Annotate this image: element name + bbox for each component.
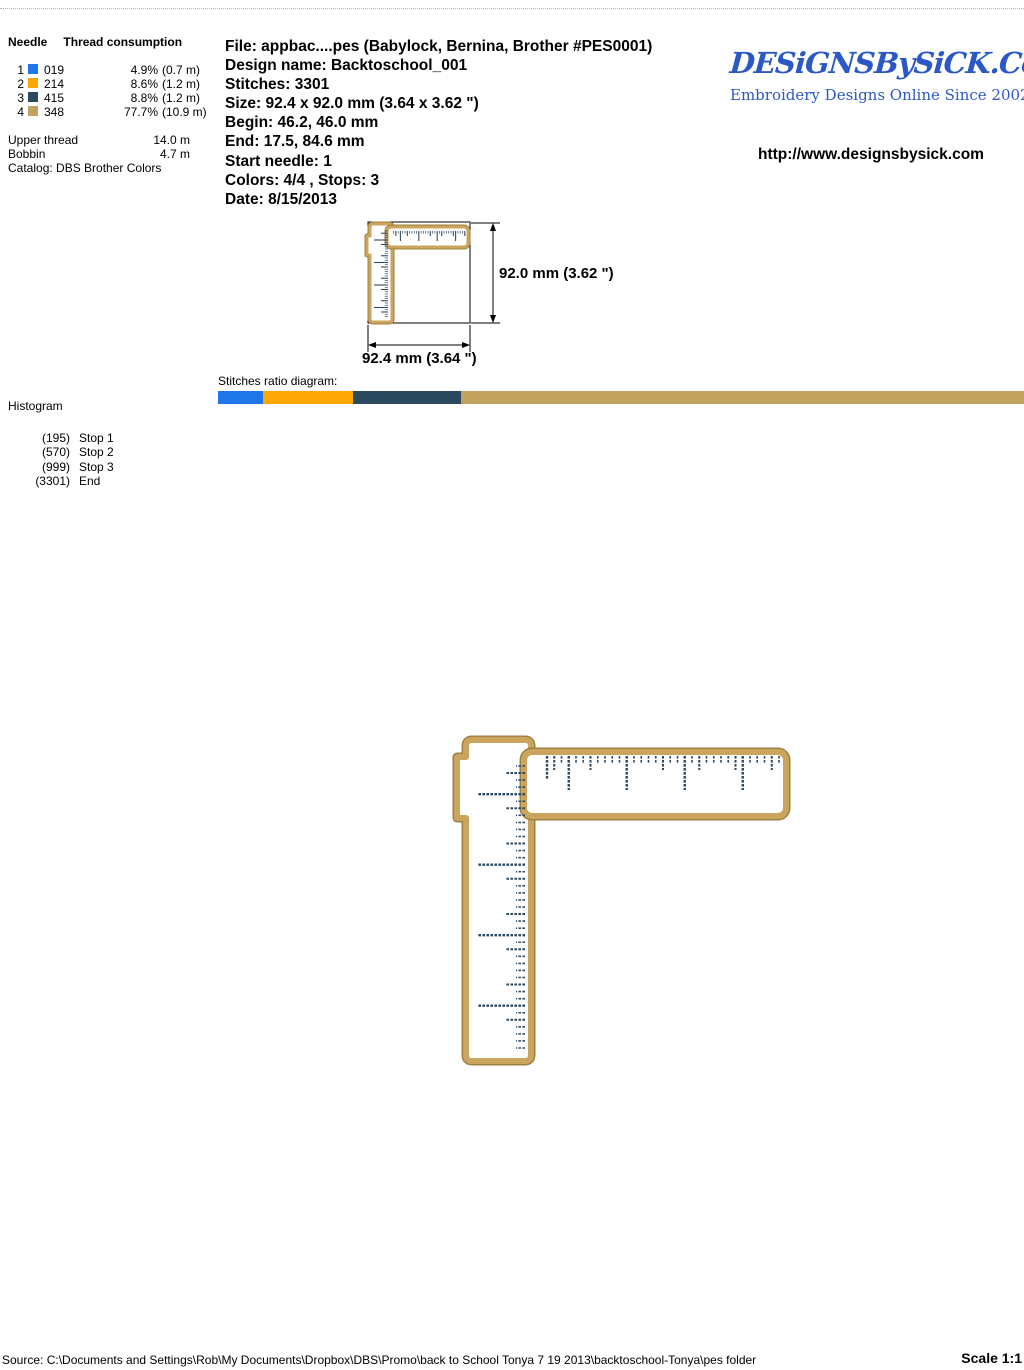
ratio-segment [353,391,460,404]
file-line: File: appbac....pes (Babylock, Bernina, … [225,37,652,56]
thread-length: (1.2 m) [162,77,200,91]
colors-line: Colors: 4/4 , Stops: 3 [225,171,652,190]
thread-percent: 8.6% [96,77,158,91]
stitches-ratio-label: Stitches ratio diagram: [218,374,337,388]
arrowhead-left-icon [368,342,376,348]
thread-color-swatch [28,106,38,116]
needle-number: 3 [8,91,24,105]
design-preview [440,725,800,1070]
consumption-column-header: Thread consumption [63,35,182,49]
thread-code: 415 [44,91,64,105]
thread-percent: 4.9% [96,63,158,77]
arrowhead-up-icon [490,223,496,231]
histogram-label: Histogram [8,399,63,413]
stop-row: (999) Stop 3 [0,460,150,474]
upper-thread-label: Upper thread [8,133,78,147]
stop-stitch-count: (3301) [0,474,70,488]
end-line: End: 17.5, 84.6 mm [225,132,652,151]
source-path: Source: C:\Documents and Settings\Rob\My… [2,1353,756,1367]
thread-row: 2 214 8.6% (1.2 m) [8,77,223,90]
ratio-segment [461,391,1024,404]
thread-percent: 77.7% [96,105,158,119]
stop-stitch-count: (570) [0,445,70,459]
stop-row: (195) Stop 1 [0,431,150,445]
upper-thread-value: 14.0 m [153,133,190,147]
arrowhead-right-icon [462,342,470,348]
logo-tagline: Embroidery Designs Online Since 2002 [730,86,1024,104]
stop-label: Stop 1 [79,431,114,445]
thread-length: (0.7 m) [162,63,200,77]
perforation-line [0,8,1024,9]
stitches-ratio-bar [218,391,1024,404]
start-needle-line: Start needle: 1 [225,152,652,171]
design-name-line: Design name: Backtoschool_001 [225,56,652,75]
design-sheet-page: NeedleThread consumption 1 019 4.9% (0.7… [0,0,1024,1370]
catalog-line: Catalog: DBS Brother Colors [8,161,161,175]
stop-stitch-count: (195) [0,431,70,445]
thread-length: (1.2 m) [162,91,200,105]
site-url: http://www.designsbysick.com [758,146,984,164]
thread-color-swatch [28,78,38,88]
thread-code: 214 [44,77,64,91]
designsbysick-logo: DESiGNSBySiCK.CoM [729,46,1024,80]
thread-percent: 8.8% [96,91,158,105]
thread-length: (10.9 m) [162,105,207,119]
thread-table-header: NeedleThread consumption [8,35,182,49]
thread-color-swatch [28,92,38,102]
height-dimension-label: 92.0 mm (3.62 ") [499,265,614,282]
thread-code: 348 [44,105,64,119]
stop-row: (3301) End [0,474,150,488]
thread-row: 4 348 77.7% (10.9 m) [8,105,223,118]
width-dimension-label: 92.4 mm (3.64 ") [362,350,477,367]
scale-label: Scale 1:1 [961,1350,1022,1366]
thread-row: 1 019 4.9% (0.7 m) [8,63,223,76]
needle-number: 4 [8,105,24,119]
needle-number: 1 [8,63,24,77]
stop-row: (570) Stop 2 [0,445,150,459]
file-info-block: File: appbac....pes (Babylock, Bernina, … [225,37,652,209]
thread-code: 019 [44,63,64,77]
stitches-line: Stitches: 3301 [225,75,652,94]
stop-label: Stop 3 [79,460,114,474]
stop-label: Stop 2 [79,445,114,459]
bobbin-label: Bobbin [8,147,45,161]
needle-number: 2 [8,77,24,91]
date-line: Date: 8/15/2013 [225,190,652,209]
begin-line: Begin: 46.2, 46.0 mm [225,113,652,132]
needle-column-header: Needle [8,35,47,49]
thread-color-swatch [28,64,38,74]
size-line: Size: 92.4 x 92.0 mm (3.64 x 3.62 ") [225,94,652,113]
stop-stitch-count: (999) [0,460,70,474]
bobbin-value: 4.7 m [160,147,190,161]
thread-row: 3 415 8.8% (1.2 m) [8,91,223,104]
stop-label: End [79,474,100,488]
ratio-segment [218,391,263,404]
arrowhead-down-icon [490,315,496,323]
ratio-segment [263,391,353,404]
